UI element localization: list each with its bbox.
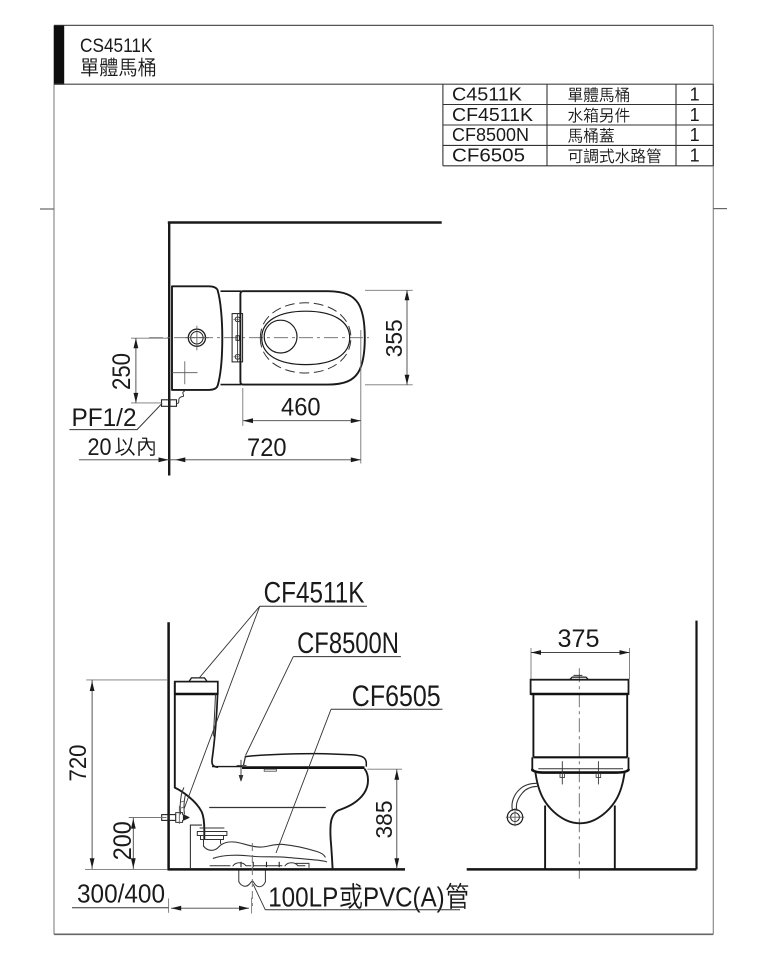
- svg-text:100LP: 100LP: [268, 882, 338, 913]
- svg-text:1: 1: [690, 146, 700, 166]
- svg-text:CS4511K: CS4511K: [80, 36, 153, 57]
- svg-text:PF1/2: PF1/2: [72, 404, 137, 432]
- svg-text:720: 720: [247, 434, 287, 462]
- svg-text:300/400: 300/400: [77, 880, 165, 908]
- svg-text:250: 250: [108, 353, 136, 390]
- svg-text:C4511K: C4511K: [452, 84, 522, 104]
- svg-text:460: 460: [281, 394, 321, 422]
- svg-text:1: 1: [690, 84, 700, 104]
- svg-text:385: 385: [371, 801, 397, 839]
- svg-text:1: 1: [690, 125, 700, 145]
- svg-text:375: 375: [558, 625, 600, 653]
- svg-text:PVC(A): PVC(A): [363, 882, 445, 913]
- svg-text:CF4511K: CF4511K: [452, 105, 533, 125]
- svg-text:200: 200: [109, 821, 137, 860]
- svg-text:CF8500N: CF8500N: [297, 627, 399, 660]
- svg-text:355: 355: [381, 319, 407, 357]
- svg-text:720: 720: [65, 745, 92, 782]
- svg-text:20: 20: [88, 434, 112, 461]
- svg-text:CF6505: CF6505: [452, 146, 525, 166]
- svg-text:CF8500N: CF8500N: [452, 125, 529, 145]
- svg-text:1: 1: [690, 105, 700, 125]
- svg-text:CF6505: CF6505: [352, 680, 441, 713]
- svg-text:CF4511K: CF4511K: [264, 576, 365, 609]
